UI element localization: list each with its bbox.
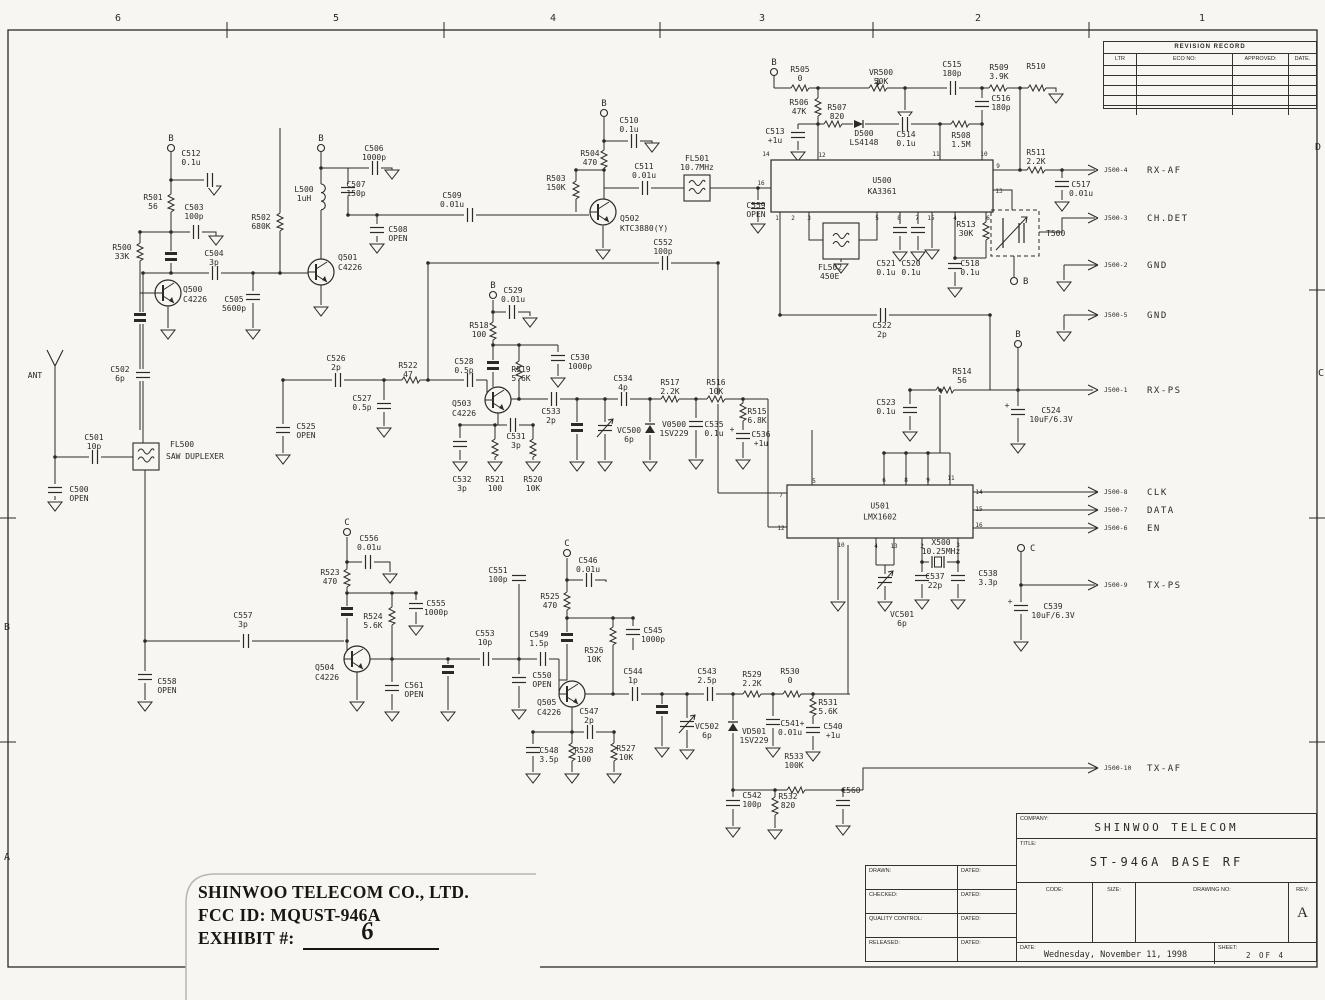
ic-name-U501: U501 — [870, 502, 889, 511]
drawing-title: ST-946A BASE RF — [1017, 839, 1316, 869]
symbol-backing — [584, 724, 596, 740]
junction-dot — [458, 423, 462, 427]
choke-symbol — [341, 613, 353, 616]
component-C512: C5120.1u — [181, 149, 200, 167]
symbol-backing — [506, 304, 518, 320]
symbol-backing — [464, 207, 476, 223]
connector-arrow — [1088, 310, 1098, 315]
component-VD501: VD5011SV229 — [740, 727, 769, 745]
component-R509: R5093.9K — [989, 63, 1008, 81]
ic-pin-number: 10 — [837, 542, 845, 549]
junction-dot — [685, 692, 689, 696]
component-C561: C561OPEN — [404, 681, 423, 699]
released-label: RELEASED: — [866, 938, 958, 962]
component-VC502: VC5026p — [695, 722, 719, 740]
symbol-backing — [190, 224, 202, 240]
connector-signal-CLK: CLK — [1147, 488, 1168, 498]
connector-pin-J500-8: J500-8 — [1104, 488, 1128, 496]
company-label: COMPANY: — [1020, 816, 1049, 822]
symbol-backing — [240, 633, 252, 649]
terminal-label-C: C — [1030, 544, 1035, 554]
symbol-backing — [452, 438, 468, 450]
choke-symbol — [487, 367, 499, 370]
ground-symbol — [488, 462, 502, 471]
choke-symbol — [656, 711, 668, 714]
transistor-part-Q505: C4226 — [537, 708, 561, 717]
choke-symbol — [571, 423, 583, 426]
component-C541: C5410.01u — [778, 719, 802, 737]
component-C555: C5551000p — [424, 599, 448, 617]
component-C504: C5043p — [204, 249, 223, 267]
connector-arrow — [1088, 505, 1098, 510]
ic-pin-number: 2 — [791, 215, 795, 222]
ground-symbol — [645, 143, 659, 152]
ic-pin-number: 15 — [975, 506, 983, 513]
symbol-backing — [659, 255, 671, 271]
ground-symbol — [370, 244, 384, 253]
symbol-backing — [316, 184, 326, 210]
junction-dot — [414, 591, 418, 595]
component-C516: C516180p — [991, 94, 1010, 112]
ic-pin-number: 1 — [775, 215, 779, 222]
component-C533: C5332p — [541, 407, 560, 425]
transistor-part-Q502: KTC3880(Y) — [620, 224, 668, 233]
connector-signal-DATA: DATA — [1147, 506, 1175, 516]
ground-symbol — [209, 236, 223, 245]
ic-pin-number: 3 — [807, 215, 811, 222]
junction-dot — [631, 616, 635, 620]
choke-symbol — [134, 319, 146, 322]
symbol-backing — [1054, 178, 1070, 190]
junction-dot — [1016, 388, 1020, 392]
junction-dot — [517, 657, 521, 661]
component-C552: C552100p — [653, 238, 672, 256]
terminal-label-C: C — [344, 518, 349, 528]
component-C501: C50110p — [84, 433, 103, 451]
symbol-backing — [892, 224, 908, 236]
junction-dot — [938, 122, 942, 126]
component-C521: C5210.1u — [876, 259, 895, 277]
ground-symbol — [768, 830, 782, 839]
component-C518: C5180.1u — [960, 259, 979, 277]
junction-dot — [602, 139, 606, 143]
revision-empty-row — [1104, 96, 1316, 106]
component-X500: X50010.25MHz — [922, 538, 961, 556]
code-size-row: CODE: SIZE: DRAWING NO: REV: A — [1017, 883, 1316, 943]
connector-pin-J500-3: J500-3 — [1104, 214, 1128, 222]
ic-pin-number: 7 — [779, 492, 783, 499]
junction-dot — [345, 591, 349, 595]
component-C539: C53910uF/6.3V — [1031, 602, 1075, 620]
symbol-backing — [369, 160, 381, 176]
sign-row-released: RELEASED: DATED: — [866, 938, 1016, 962]
connector-signal-TX-AF: TX-AF — [1147, 764, 1182, 774]
ic-pin-number: 16 — [757, 180, 765, 187]
component-C500: C500OPEN — [69, 485, 88, 503]
terminal-label-B: B — [490, 281, 495, 291]
connector-arrow — [1088, 390, 1098, 395]
zone-letter: B — [4, 622, 10, 633]
component-C517: C5170.01u — [1069, 180, 1093, 198]
component-R517: R5172.2K — [660, 378, 679, 396]
revision-header-ltr: LTR — [1104, 54, 1137, 65]
component-C556: C5560.01u — [357, 534, 381, 552]
ground-symbol — [377, 428, 391, 437]
junction-dot — [426, 261, 430, 265]
component-L500: L5001uH — [294, 185, 313, 203]
transistor-part-Q500: C4226 — [183, 295, 207, 304]
junction-dot — [778, 313, 782, 317]
ic-part-U500: KA3361 — [868, 187, 897, 196]
symbol-backing — [550, 352, 566, 364]
antenna-icon — [47, 350, 63, 366]
signature-block: DRAWN: DATED: CHECKED: DATED: QUALITY CO… — [865, 865, 1017, 962]
component-C508: C508OPEN — [388, 225, 407, 243]
ground-symbol — [409, 626, 423, 635]
ground-symbol — [751, 224, 765, 233]
ground-symbol — [655, 748, 669, 757]
component-C535: C5350.1u — [704, 420, 723, 438]
ground-symbol — [836, 826, 850, 835]
company-name: SHINWOO TELECOM — [1017, 814, 1316, 834]
junction-dot — [278, 271, 282, 275]
component-C559: C559OPEN — [746, 201, 765, 219]
connector-arrow — [1088, 528, 1098, 533]
component-R520: R52010K — [523, 475, 542, 493]
revision-record-header-row: LTR ECO NO: APPROVED: DATE. — [1104, 54, 1316, 66]
component-R525: R525470 — [540, 592, 559, 610]
transistor-label-Q502: Q502 — [620, 214, 639, 223]
component-R532: R532820 — [778, 792, 797, 810]
ic-pin-number: 12 — [777, 525, 785, 532]
junction-dot — [169, 178, 173, 182]
terminal-label-B: B — [601, 99, 606, 109]
wire — [863, 768, 1098, 790]
component-C537: C53722p — [925, 572, 944, 590]
ic-pin-number: 6 — [986, 215, 990, 222]
component-C548: C5483.5p — [539, 746, 558, 764]
junction-dot — [841, 788, 845, 792]
component-R524: R5245.6K — [363, 612, 382, 630]
ground-symbol — [766, 748, 780, 757]
junction-dot — [611, 692, 615, 696]
transistor-label-Q503: Q503 — [452, 399, 471, 408]
connector-signal-CH.DET: CH.DET — [1147, 214, 1189, 224]
component-C557: C5573p — [233, 611, 252, 629]
transistor-label-Q500: Q500 — [183, 285, 202, 294]
junction-dot — [920, 560, 924, 564]
junction-dot — [816, 122, 820, 126]
sheet-cell: SHEET: 2 OF 4 — [1215, 943, 1316, 964]
ground-symbol — [831, 602, 845, 611]
connector-arrow — [1088, 385, 1098, 390]
connector-arrow — [1088, 265, 1098, 270]
junction-dot — [980, 86, 984, 90]
component-C505: C5055600p — [222, 295, 246, 313]
ic-pin-number: 13 — [890, 543, 898, 550]
ground-symbol — [161, 330, 175, 339]
transistor-part-Q503: C4226 — [452, 409, 476, 418]
connector-arrow — [1088, 492, 1098, 497]
junction-dot — [574, 168, 578, 172]
filter-FL501 — [684, 175, 710, 201]
connector-signal-GND: GND — [1147, 261, 1168, 271]
choke-symbol — [442, 671, 454, 674]
wire — [809, 212, 823, 240]
filter-value-FL501: 10.7MHz — [680, 163, 714, 172]
symbol-backing — [537, 651, 549, 667]
component-R518: R518100 — [469, 321, 488, 339]
symbol-backing — [47, 484, 63, 496]
junction-dot — [953, 256, 957, 260]
terminal-label-B: B — [1015, 330, 1020, 340]
ground-symbol — [596, 250, 610, 259]
component-C534: C5344p — [613, 374, 632, 392]
ic-part-U501: LMX1602 — [863, 513, 897, 522]
ground-symbol — [385, 712, 399, 721]
ground-symbol — [385, 170, 399, 179]
checked-label: CHECKED: — [866, 890, 958, 913]
terminal-label-B: B — [1023, 277, 1028, 287]
sign-row-checked: CHECKED: DATED: — [866, 890, 1016, 914]
connector-signal-TX-PS: TX-PS — [1147, 581, 1182, 591]
symbol-backing — [790, 129, 806, 141]
terminal-label-B: B — [168, 134, 173, 144]
component-R500: R50033K — [112, 243, 131, 261]
component-R506: R50647K — [789, 98, 808, 116]
ic-pin-number: 6 — [882, 477, 886, 484]
connector-arrow — [1088, 580, 1098, 585]
wire — [321, 168, 392, 170]
junction-dot — [382, 378, 386, 382]
sign-row-quality: QUALITY CONTROL: DATED: — [866, 914, 1016, 938]
zone-letter: A — [4, 852, 10, 863]
component-R513: R51330K — [956, 220, 975, 238]
component-R519: R5195.6K — [511, 365, 530, 383]
junction-dot — [169, 230, 173, 234]
ground-symbol — [736, 460, 750, 469]
ground-symbol — [314, 307, 328, 316]
transistor-part-Q504: C4226 — [315, 673, 339, 682]
revision-empty-row — [1104, 66, 1316, 76]
connector-signal-GND: GND — [1147, 311, 1168, 321]
zone-number: 6 — [115, 13, 121, 24]
junction-dot — [390, 591, 394, 595]
junction-dot — [731, 692, 735, 696]
junction-dot — [926, 451, 930, 455]
symbol-backing — [910, 224, 926, 236]
polarity-plus: + — [730, 425, 735, 434]
component-C503: C503100p — [184, 203, 203, 221]
junction-dot — [138, 230, 142, 234]
drawn-label: DRAWN: — [866, 866, 958, 889]
junction-dot — [731, 788, 735, 792]
symbol-backing — [1013, 602, 1029, 614]
connector-pin-J500-10: J500-10 — [1104, 764, 1131, 772]
component-D500: D500LS4148 — [850, 129, 879, 147]
connector-pin-J500-7: J500-7 — [1104, 506, 1128, 514]
ground-symbol — [383, 574, 397, 583]
symbol-backing — [209, 265, 221, 281]
symbol-backing — [369, 224, 385, 236]
junction-dot — [446, 657, 450, 661]
component-R515: R5156.8K — [747, 407, 766, 425]
date-value: Wednesday, November 11, 1998 — [1017, 943, 1214, 960]
antenna-label: ANT — [28, 371, 43, 380]
component-C513: C513+1u — [765, 127, 784, 145]
symbol-backing — [629, 686, 641, 702]
component-C526: C5262p — [326, 354, 345, 372]
symbol-backing — [735, 430, 751, 442]
component-C520: C5200.1u — [901, 259, 920, 277]
junction-dot — [1018, 168, 1022, 172]
symbol-backing — [376, 400, 392, 412]
ground-symbol — [512, 710, 526, 719]
filter-value-FL500: SAW DUPLEXER — [166, 452, 224, 461]
component-C522: C5222p — [872, 321, 891, 339]
junction-dot — [956, 560, 960, 564]
ic-pin-number: 14 — [762, 151, 770, 158]
junction-dot — [811, 692, 815, 696]
zone-number: 1 — [1199, 13, 1205, 24]
junction-dot — [143, 639, 147, 643]
symbol-backing — [137, 671, 153, 683]
connector-pin-J500-4: J500-4 — [1104, 166, 1128, 174]
ic-pin-number: 8 — [897, 215, 901, 222]
size-cell: SIZE: — [1093, 883, 1136, 942]
connector-arrow — [1088, 315, 1098, 320]
drawing-no-label: DRAWING NO: — [1136, 887, 1288, 893]
junction-dot — [565, 578, 569, 582]
ground-symbol — [1049, 94, 1063, 103]
connector-arrow — [1088, 165, 1098, 170]
exhibit-underline: 6 — [303, 928, 439, 950]
transformer-label: T500 — [1046, 229, 1065, 238]
component-C506: C5061000p — [362, 144, 386, 162]
ground-symbol — [565, 774, 579, 783]
junction-dot — [517, 397, 521, 401]
junction-dot — [375, 213, 379, 217]
junction-dot — [345, 639, 349, 643]
symbol-backing — [507, 417, 519, 433]
component-C515: C515180p — [942, 60, 961, 78]
ic-pin-number: 16 — [975, 522, 983, 529]
junction-dot — [390, 657, 394, 661]
choke-symbol — [561, 633, 573, 636]
connector-signal-EN: EN — [1147, 524, 1161, 534]
component-C531: C5313p — [506, 432, 525, 450]
symbol-backing — [362, 554, 374, 570]
component-C511: C5110.01u — [632, 162, 656, 180]
component-C514: C5140.1u — [896, 130, 915, 148]
junction-dot — [908, 388, 912, 392]
terminal-label-B: B — [771, 58, 776, 68]
ground-symbol — [246, 330, 260, 339]
transistor-part-Q501: C4226 — [338, 263, 362, 272]
symbol-backing — [275, 424, 291, 436]
component-R527: R52710K — [616, 744, 635, 762]
symbol-backing — [725, 797, 741, 809]
title-block: COMPANY: SHINWOO TELECOM TITLE: ST-946A … — [1016, 813, 1317, 962]
drawing-no-cell: DRAWING NO: — [1136, 883, 1289, 942]
ground-symbol — [523, 318, 537, 327]
ic-U500 — [771, 160, 993, 212]
connector-arrow — [1088, 487, 1098, 492]
component-C545: C5451000p — [641, 626, 665, 644]
ground-symbol — [453, 462, 467, 471]
terminal-label-B: B — [318, 134, 323, 144]
symbol-backing — [974, 98, 990, 110]
ic-pin-number: 4 — [874, 543, 878, 550]
symbol-backing — [89, 449, 101, 465]
junction-dot — [493, 423, 497, 427]
ic-pin-number: 2 — [920, 543, 924, 550]
symbol-backing — [902, 404, 918, 416]
stamp-exhibit-label: EXHIBIT #: — [198, 927, 295, 950]
ic-pin-number: 7 — [915, 215, 919, 222]
transformer-box-T500 — [991, 210, 1039, 256]
revision-header-eco: ECO NO: — [1137, 54, 1233, 65]
component-C558: C558OPEN — [157, 677, 176, 695]
symbol-backing — [805, 724, 821, 736]
ground-symbol — [948, 288, 962, 297]
quality-control-label: QUALITY CONTROL: — [866, 914, 958, 937]
terminal-B — [601, 110, 608, 117]
junction-dot — [1018, 86, 1022, 90]
symbol-backing — [1010, 406, 1026, 418]
filter-FL502 — [823, 223, 859, 259]
component-R510: R510 — [1026, 62, 1045, 71]
ground-symbol — [915, 600, 929, 609]
terminal-C — [344, 529, 351, 536]
junction-dot — [531, 423, 535, 427]
component-VC501: VC5016p — [890, 610, 914, 628]
terminal-B — [1011, 278, 1018, 285]
symbol-backing — [548, 391, 560, 407]
ground-symbol — [48, 502, 62, 511]
component-C507: C507150p — [346, 180, 365, 198]
component-R508: R5081.5M — [951, 131, 970, 149]
connector-pin-J500-1: J500-1 — [1104, 386, 1128, 394]
component-C525: C525OPEN — [296, 422, 315, 440]
junction-dot — [319, 166, 323, 170]
component-C549: C5491.5p — [529, 630, 548, 648]
choke-symbol — [561, 639, 573, 642]
component-R531: R5315.6K — [818, 698, 837, 716]
symbol-backing — [408, 600, 424, 612]
terminal-B — [771, 69, 778, 76]
ic-pin-number: 13 — [995, 188, 1003, 195]
choke-symbol — [442, 665, 454, 668]
junction-dot — [716, 261, 720, 265]
connector-pin-J500-9: J500-9 — [1104, 581, 1128, 589]
revision-empty-row — [1104, 106, 1316, 115]
symbol-backing — [204, 172, 216, 188]
choke-symbol — [165, 252, 177, 255]
junction-dot — [281, 378, 285, 382]
ic-pin-number: 4 — [953, 215, 957, 222]
title-row: TITLE: ST-946A BASE RF — [1017, 839, 1316, 883]
junction-dot — [517, 343, 521, 347]
junction-dot — [904, 451, 908, 455]
junction-dot — [491, 310, 495, 314]
ic-name-U500: U500 — [872, 176, 891, 185]
transformer-adjust-arrow — [996, 217, 1027, 250]
junction-dot — [491, 343, 495, 347]
terminal-label-C: C — [564, 539, 569, 549]
fcc-stamp: SHINWOO TELECOM CO., LTD. FCC ID: MQUST-… — [198, 881, 538, 950]
connector-pin-J500-5: J500-5 — [1104, 311, 1128, 319]
